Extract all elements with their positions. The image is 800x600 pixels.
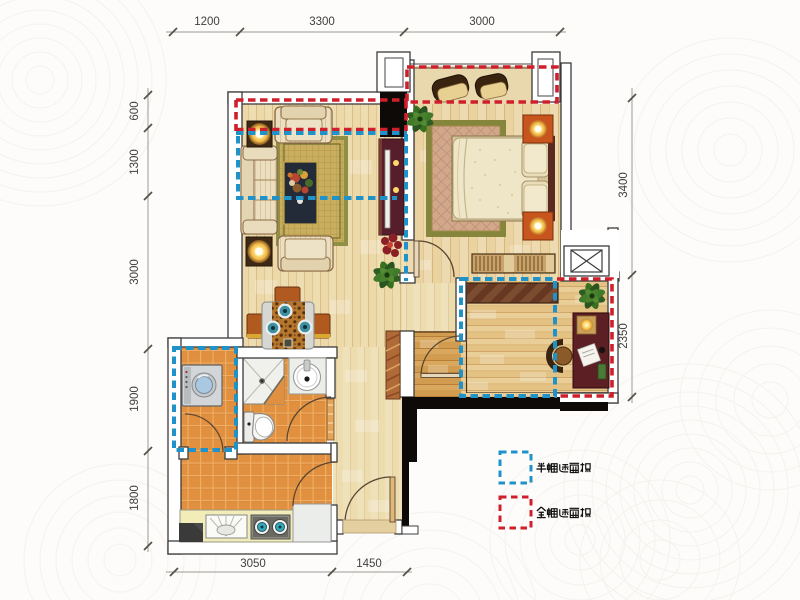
svg-text:1300: 1300 [129,149,141,175]
svg-text:2350: 2350 [618,323,630,349]
svg-text:1450: 1450 [356,558,382,570]
svg-text:3000: 3000 [469,16,495,28]
svg-text:1900: 1900 [129,386,141,412]
svg-text:3050: 3050 [240,558,266,570]
svg-text:600: 600 [129,101,141,120]
svg-text:3400: 3400 [618,172,630,198]
svg-text:1200: 1200 [194,16,220,28]
svg-text:3000: 3000 [129,259,141,285]
svg-text:1800: 1800 [129,485,141,511]
svg-text:3300: 3300 [309,16,335,28]
